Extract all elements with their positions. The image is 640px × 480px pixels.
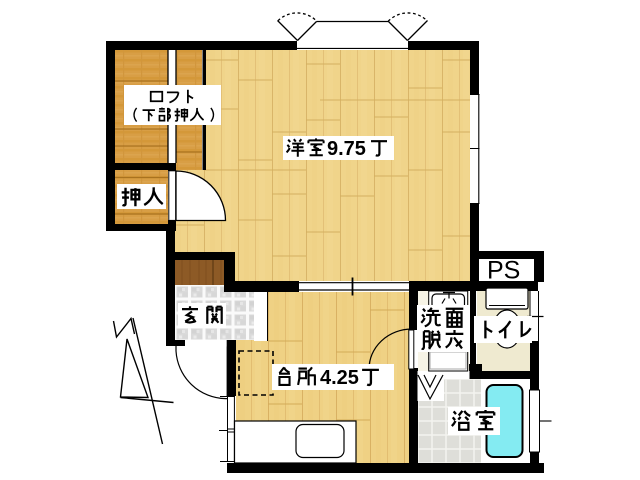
- svg-text:PS: PS: [487, 257, 520, 285]
- svg-text:9.75: 9.75: [327, 138, 366, 160]
- svg-text:4.25: 4.25: [320, 367, 359, 389]
